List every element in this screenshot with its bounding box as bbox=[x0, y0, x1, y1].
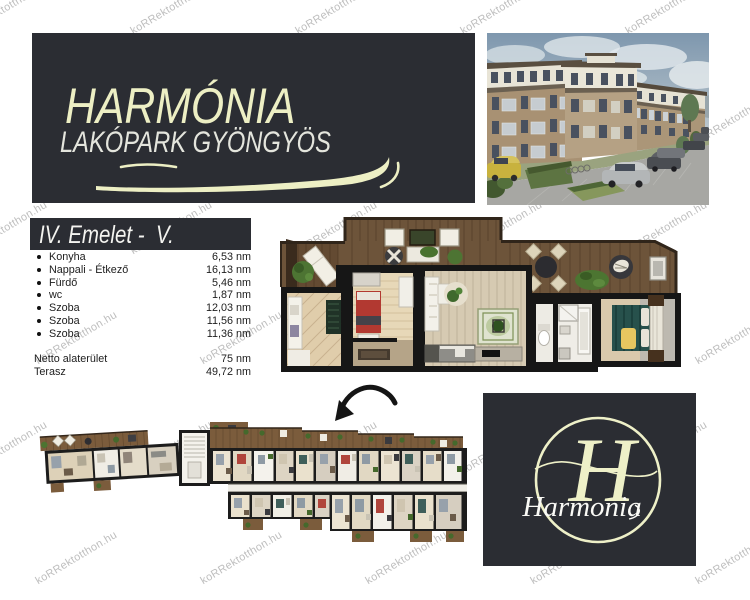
svg-text:Harmonia: Harmonia bbox=[521, 491, 641, 523]
